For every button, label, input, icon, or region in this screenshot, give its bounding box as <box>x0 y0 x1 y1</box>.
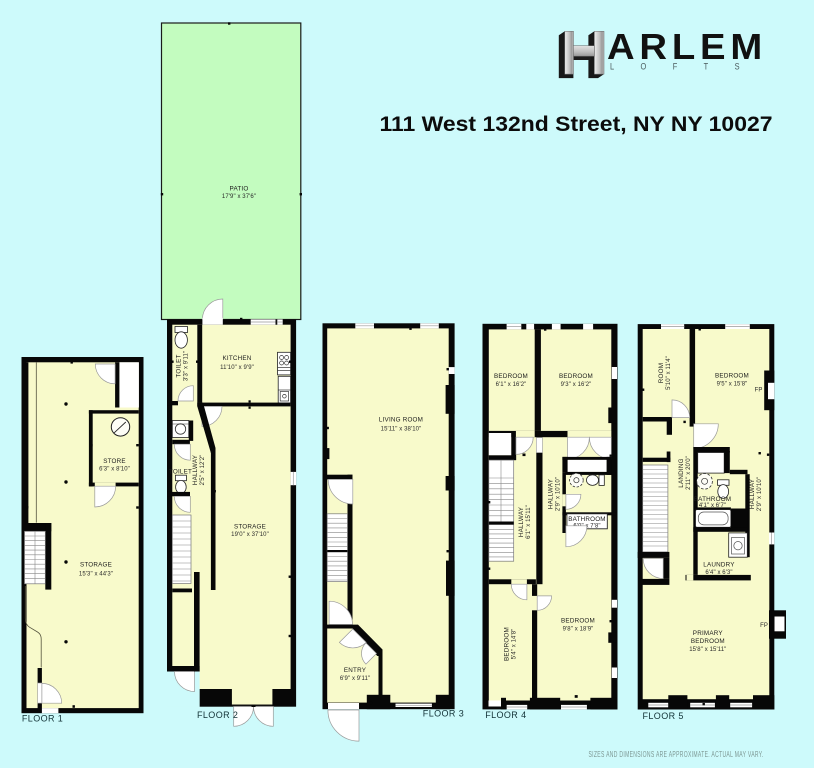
svg-text:17'9" x 37'6": 17'9" x 37'6" <box>222 194 256 200</box>
svg-text:HALLWAY: HALLWAY <box>749 478 756 509</box>
svg-text:6'9" x 9'11": 6'9" x 9'11" <box>340 676 370 682</box>
svg-text:TOILET: TOILET <box>176 354 183 377</box>
svg-text:6'1" x 16'2": 6'1" x 16'2" <box>496 382 527 388</box>
svg-text:FP: FP <box>760 623 768 629</box>
svg-text:PRIMARY: PRIMARY <box>693 630 724 637</box>
svg-text:LOFTS: LOFTS <box>610 62 766 72</box>
svg-text:FLOOR 4: FLOOR 4 <box>485 710 526 720</box>
svg-text:2'11" x 20'0": 2'11" x 20'0" <box>686 456 692 490</box>
svg-text:STORAGE: STORAGE <box>80 562 112 569</box>
svg-text:FLOOR 5: FLOOR 5 <box>643 711 684 721</box>
svg-text:15'8" x 15'11": 15'8" x 15'11" <box>689 647 726 653</box>
svg-text:BEDROOM: BEDROOM <box>494 373 528 380</box>
svg-text:FP: FP <box>755 388 763 394</box>
svg-text:9'8" x 18'9": 9'8" x 18'9" <box>563 627 594 633</box>
svg-text:PATIO: PATIO <box>230 186 249 193</box>
svg-text:TOILET: TOILET <box>169 469 192 476</box>
svg-text:9'3" x 16'2": 9'3" x 16'2" <box>561 382 592 388</box>
svg-text:SIZES AND DIMENSIONS ARE APPRO: SIZES AND DIMENSIONS ARE APPROXIMATE. AC… <box>589 750 764 759</box>
svg-text:19'0" x 37'10": 19'0" x 37'10" <box>231 532 269 538</box>
svg-text:STORE: STORE <box>103 458 126 465</box>
svg-text:2'9" x 10'10": 2'9" x 10'10" <box>556 477 562 511</box>
svg-text:11'10" x 9'9": 11'10" x 9'9" <box>220 365 254 371</box>
svg-text:FLOOR 1: FLOOR 1 <box>22 714 63 724</box>
svg-text:6'1" x 15'11": 6'1" x 15'11" <box>526 505 532 539</box>
svg-text:111 West 132nd Street, NY NY 1: 111 West 132nd Street, NY NY 10027 <box>380 112 773 136</box>
svg-text:KITCHEN: KITCHEN <box>222 355 251 362</box>
svg-text:BEDROOM: BEDROOM <box>561 618 595 625</box>
svg-text:BEDROOM: BEDROOM <box>691 638 725 645</box>
svg-text:ENTRY: ENTRY <box>344 667 367 674</box>
svg-text:BATHROOM: BATHROOM <box>568 516 606 523</box>
svg-text:FLOOR 2: FLOOR 2 <box>197 710 238 720</box>
svg-text:15'3" x 44'3": 15'3" x 44'3" <box>79 572 113 578</box>
svg-text:2'9" x 10'10": 2'9" x 10'10" <box>757 477 763 511</box>
svg-text:LIVING ROOM: LIVING ROOM <box>379 417 423 424</box>
svg-text:HALLWAY: HALLWAY <box>518 506 525 537</box>
svg-text:2'5" x 12'2": 2'5" x 12'2" <box>200 455 206 486</box>
svg-text:LAUNDRY: LAUNDRY <box>703 562 735 569</box>
svg-text:HALLWAY: HALLWAY <box>548 478 555 509</box>
svg-text:BEDROOM: BEDROOM <box>504 627 511 661</box>
svg-text:5'10" x 11'4": 5'10" x 11'4" <box>666 356 672 390</box>
svg-text:3'3" x 9'11": 3'3" x 9'11" <box>184 351 190 381</box>
svg-text:15'11" x 38'10": 15'11" x 38'10" <box>381 427 422 433</box>
svg-text:6'3" x 8'10": 6'3" x 8'10" <box>99 467 130 473</box>
svg-text:LANDING: LANDING <box>678 458 685 487</box>
svg-text:STORAGE: STORAGE <box>234 524 266 531</box>
svg-text:9'5" x 15'8": 9'5" x 15'8" <box>717 382 748 388</box>
svg-text:BEDROOM: BEDROOM <box>559 373 593 380</box>
svg-text:5'4" x 14'8": 5'4" x 14'8" <box>512 629 518 660</box>
svg-text:HALLWAY: HALLWAY <box>192 454 199 485</box>
svg-text:BEDROOM: BEDROOM <box>715 373 749 380</box>
svg-text:ROOM: ROOM <box>658 363 665 383</box>
svg-text:FLOOR 3: FLOOR 3 <box>423 709 464 719</box>
